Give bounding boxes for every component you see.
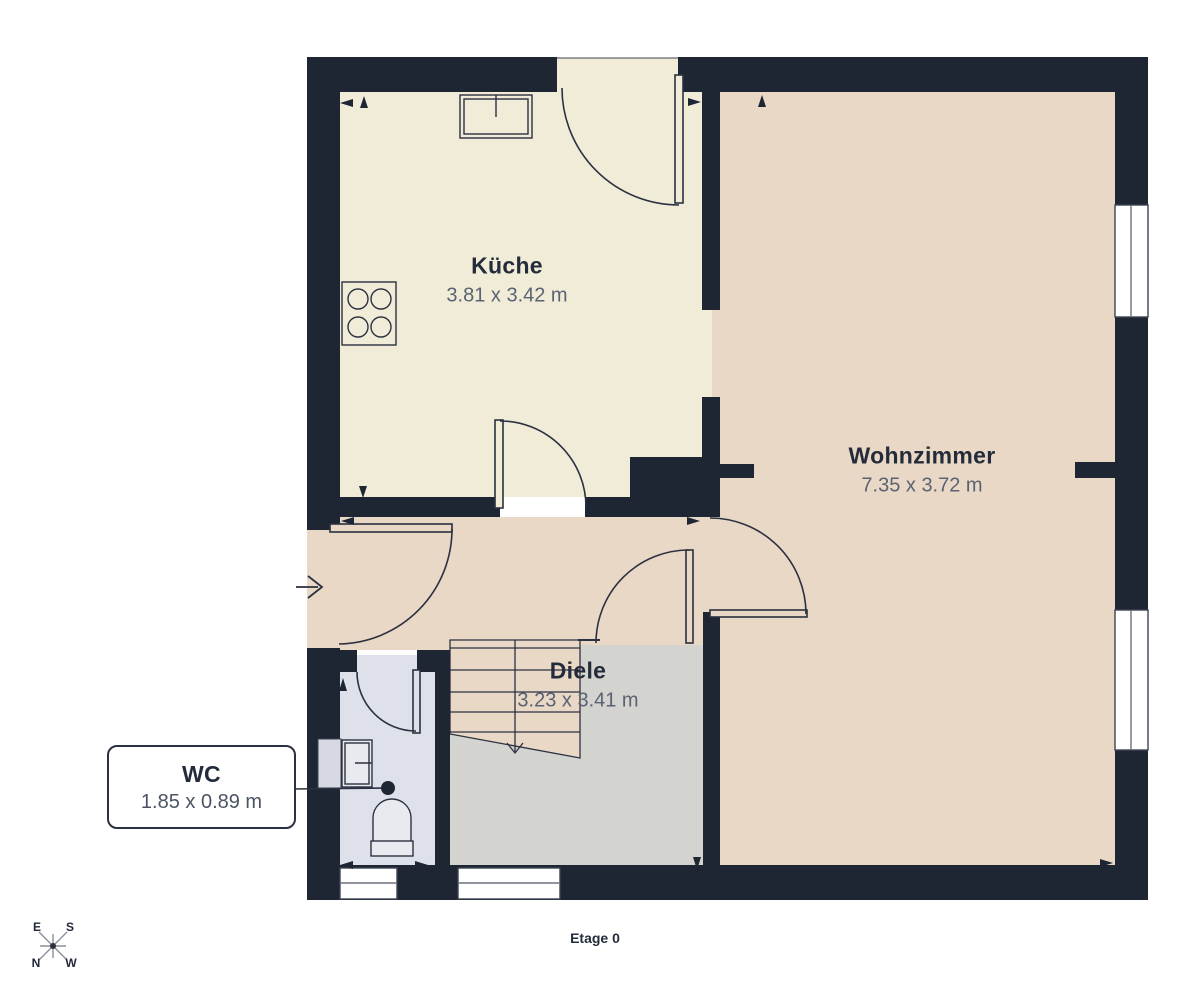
compass-east: E xyxy=(33,920,41,934)
wall-stub-right xyxy=(1075,462,1115,478)
wall-chunk xyxy=(630,457,720,517)
leader-dot xyxy=(381,781,395,795)
room-name: WC xyxy=(182,761,221,788)
floorplan-canvas: Küche 3.81 x 3.42 m Wohnzimmer 7.35 x 3.… xyxy=(0,0,1200,990)
diele-floor[interactable] xyxy=(340,517,703,650)
toilet-icon xyxy=(371,799,413,856)
entry-opening xyxy=(307,530,340,648)
window-bottom-hall xyxy=(458,868,560,899)
window-right-lower xyxy=(1115,610,1148,750)
compass-west: W xyxy=(65,956,76,970)
stove-icon xyxy=(342,282,396,345)
floorplan-drawing xyxy=(0,0,1200,990)
wc-niche xyxy=(318,739,341,788)
room-label-wc-callout: WC 1.85 x 0.89 m xyxy=(107,745,296,829)
compass-north: N xyxy=(32,956,41,970)
wall-stub-living xyxy=(718,464,754,478)
compass-south: S xyxy=(66,920,74,934)
sink-icon xyxy=(342,740,372,787)
wohnzimmer-floor[interactable] xyxy=(703,92,1115,865)
compass-rose xyxy=(39,932,67,960)
floor-level-label: Etage 0 xyxy=(570,930,620,946)
window-bottom-wc xyxy=(340,868,397,899)
window-right-upper xyxy=(1115,205,1148,317)
kitchen-sink-unit xyxy=(460,95,532,138)
kitchen-door-opening xyxy=(557,58,678,94)
room-dimensions: 1.85 x 0.89 m xyxy=(141,791,262,814)
